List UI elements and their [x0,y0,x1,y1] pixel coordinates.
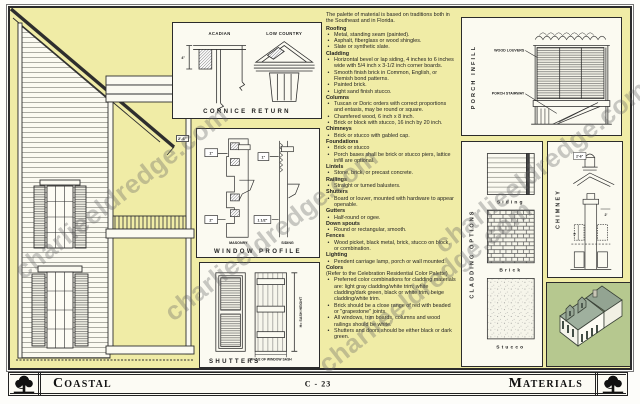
window-profile-panel: 1" 2" 1" 1 1/2" MASONRY SIDING WINDOW PR… [196,128,320,258]
bullet-item: Smooth finish brick in Common, English, … [326,70,456,83]
bullet-item: Pendent carriage lamp, porch or wall mou… [326,259,456,265]
house-elevation-drawing [10,8,196,368]
bullet-item: Horizontal bevel or lap siding, 4 inches… [326,57,456,70]
cornice-return-drawing: ACADIAN LOW COUNTRY 4" CORNICE RETURN [173,23,321,118]
chimney-height-dimension: 5' [573,232,576,236]
siding-label: SIDING [281,241,294,245]
bullet-item: Brick or block with stucco, 16 inch by 2… [326,120,456,126]
materials-intro: The palette of material is based on trad… [326,12,456,25]
axon-chimney [593,290,597,297]
footer-right-title: Materials [509,376,583,392]
materials-section: FencesWood picket, black metal, brick, s… [326,233,456,252]
materials-section: LintelsStone, brick, or precast concrete… [326,164,456,177]
bullet-item: Board or louver, mounted with hardware t… [326,196,456,209]
bullet-item: Stone, brick, or precast concrete. [326,170,456,176]
window-profile-outside-dimension: 2'-6" [176,135,189,142]
tree-logo-left [9,373,41,395]
brick-swatch-label: Brick [499,268,522,274]
materials-sections: RoofingMetal, standing seam (painted).As… [326,26,456,341]
bullet-item: Shutters and doors should be either blac… [326,328,456,341]
shutter [75,274,88,346]
bullet-item: Wood picket, black metal, brick, stucco … [326,240,456,253]
chimney-panel: CHIMNEY 2'-6" 2' 5' [547,141,623,278]
chimney-drawing: CHIMNEY 2'-6" 2' 5' [548,142,622,277]
house-elevation-svg [10,8,196,368]
porch-post [108,102,113,354]
siding-swatch-label: Siding [497,199,525,205]
window-profile-title: WINDOW PROFILE [214,248,302,255]
shutter [34,186,45,248]
cladding-options-drawing: CLADDING OPTIONS Siding Brick Stucco [462,142,542,366]
brick-swatch [487,210,534,263]
bullet-item: Preferred color combinations for claddin… [326,277,456,302]
dim-1in-siding: 1" [262,156,266,160]
porch-infill-title: PORCH INFILL [471,45,477,109]
bullet-item: All windows, trim boards, columns and wo… [326,315,456,328]
dim-2in-masonry: 2" [209,219,213,223]
materials-section: RoofingMetal, standing seam (painted).As… [326,26,456,51]
pattern-book-sheet: ACADIAN LOW COUNTRY 4" CORNICE RETURN [0,0,640,404]
tree-icon [600,374,626,395]
cornice-return-title: CORNICE RETURN [203,109,291,115]
shutter [32,274,45,346]
porch-infill-drawing: PORCH INFILL WOOD LOUVERS PORCH STAIRWAY [462,18,621,135]
tree-logo-right [595,373,627,395]
materials-section: ShuttersBoard or louver, mounted with ha… [326,189,456,208]
stucco-swatch-label: Stucco [496,345,525,351]
window-profile-drawing: 1" 2" 1" 1 1/2" MASONRY SIDING WINDOW PR… [197,129,319,257]
page-number: C - 23 [305,380,331,389]
footer-left-title: Coastal [53,376,112,392]
materials-section: FoundationsBrick or stuccoPorch bases sh… [326,139,456,164]
upper-window [34,180,86,248]
sash-height-dimension: H= SASH HEIGHT [299,296,303,327]
shutters-drawing: H= SASH HEIGHT W= 1/2 OF WINDOW SASH SHU… [200,263,319,367]
dim-1in-masonry: 1" [209,152,213,156]
bullet-item: Straight or turned balusters. [326,183,456,189]
bullet-item: Light sand finish stucco. [326,89,456,95]
materials-section: ChimneysBrick or stucco with gabled cap. [326,126,456,139]
chimney-width-dimension: 2' [604,213,607,217]
porch-infill-panel: PORCH INFILL WOOD LOUVERS PORCH STAIRWAY [461,17,622,136]
corner-board [18,23,22,358]
acadian-label: ACADIAN [209,31,231,36]
axon-house-svg [546,282,631,367]
materials-section: Down spoutsRound or rectangular, smooth. [326,221,456,234]
bullet-item: Half-round or ogee. [326,215,456,221]
materials-section: GuttersHalf-round or ogee. [326,208,456,221]
chimney-title: CHIMNEY [556,189,562,229]
materials-section: RailingsStraight or turned balusters. [326,177,456,190]
low-country-label: LOW COUNTRY [266,31,302,36]
footer-band: Coastal C - 23 Materials [8,372,628,396]
materials-section: ColumnsTuscan or Doric orders with corre… [326,95,456,126]
stucco-swatch [487,278,534,338]
shutters-panel: H= SASH HEIGHT W= 1/2 OF WINDOW SASH SHU… [199,262,320,368]
materials-section: CladdingHorizontal bevel or lap siding, … [326,51,456,95]
porch-balustrade [113,216,186,229]
materials-section: LightingPendent carriage lamp, porch or … [326,252,456,265]
cladding-options-title: CLADDING OPTIONS [470,209,476,298]
cladding-options-panel: CLADDING OPTIONS Siding Brick Stucco [461,141,543,367]
shutters-title: SHUTTERS [209,358,261,365]
materials-section: Colors(Refer to the Celebration Resident… [326,265,456,341]
tree-icon [11,374,37,395]
dim-1half-siding: 1 1/2" [258,219,268,223]
materials-text-column: The palette of material is based on trad… [326,12,456,366]
porch-stairway-label: PORCH STAIRWAY [492,92,525,96]
chimney-cap-dimension: 2'-6" [576,155,584,159]
bullet-item: Round or rectangular, smooth. [326,227,456,233]
lower-window [32,266,88,348]
wood-louvers-label: WOOD LOUVERS [494,48,525,52]
cornice-return-panel: ACADIAN LOW COUNTRY 4" CORNICE RETURN [172,22,322,119]
bullet-item: Brick or stucco with gabled cap. [326,133,456,139]
axon-house-vignette [546,282,631,367]
bullet-item: Slate or synthetic slate. [326,44,456,50]
cornice-dimension: 4" [181,56,185,60]
masonry-label: MASONRY [229,241,248,245]
bullet-item: Tuscan or Doric orders with correct prop… [326,101,456,114]
bullet-item: Porch bases shall be brick or stucco pie… [326,152,456,165]
bullet-item: Brick should be a close range of red wit… [326,303,456,316]
shutter [75,186,86,248]
wood-louver-panel [537,47,604,98]
